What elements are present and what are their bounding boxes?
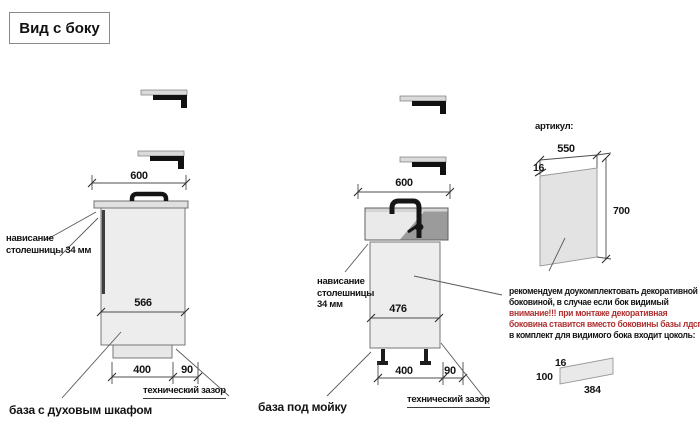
dim-566: 566 [134, 297, 151, 309]
dim-476: 476 [389, 303, 406, 315]
overhang-label-sink: нависание столешницы 34 мм [317, 276, 374, 311]
dim-400-oven: 400 [133, 364, 150, 376]
drawing-canvas: Вид с боку 600 566 400 90 технический за… [0, 0, 700, 428]
dim-90-sink: 90 [444, 365, 456, 377]
wall-bracket-icon [138, 151, 184, 169]
wall-bracket-icon [141, 90, 187, 108]
dim-16-panel: 16 [533, 162, 544, 174]
dim-line-700 [597, 153, 611, 263]
wall-bracket-icon [400, 157, 446, 175]
worktop [94, 201, 188, 208]
warning-line: боковина ставится вместо боковины базы л… [509, 319, 700, 330]
plinth-strip [560, 358, 613, 384]
technical-drawing [0, 0, 700, 428]
dim-400-sink: 400 [395, 365, 412, 377]
plinth [113, 345, 172, 358]
dim-600-oven: 600 [130, 170, 147, 182]
oven-door-gap [102, 210, 105, 294]
oven-handle [132, 194, 166, 201]
decor-panel-drawing [535, 151, 613, 384]
dim-16-plinth: 16 [555, 357, 566, 369]
panel-note-block: рекомендуем доукомплектовать декоративно… [509, 286, 700, 341]
warning-line: внимание!!! при монтаже декоративная [509, 308, 700, 319]
overhang-label-oven: нависание столешницы 34 мм [6, 233, 91, 256]
note-line: рекомендуем доукомплектовать декоративно… [509, 286, 700, 297]
worktop-edge [366, 209, 448, 213]
page-title: Вид с боку [19, 20, 100, 37]
decor-panel [540, 168, 597, 266]
leader-sink-label [327, 352, 371, 396]
dim-600-sink: 600 [395, 177, 412, 189]
note-line: в комплект для видимого бока входит цоко… [509, 330, 700, 341]
cabinet-body [370, 242, 440, 348]
tech-gap-label-oven: технический зазор [143, 385, 226, 399]
cabinet-body [101, 208, 185, 345]
dim-384-plinth: 384 [584, 384, 601, 396]
note-line: боковиной, в случае если бок видимый [509, 297, 700, 308]
adjustable-leg [420, 349, 431, 365]
oven-base-label: база с духовым шкафом [9, 403, 152, 417]
adjustable-leg [377, 349, 388, 365]
tech-gap-label-sink: технический зазор [407, 394, 490, 408]
wall-bracket-icon [400, 96, 446, 114]
sink-base-label: база под мойку [258, 400, 347, 414]
dim-90-oven: 90 [181, 364, 193, 376]
leader-overhang [345, 244, 368, 272]
view-title-box: Вид с боку [9, 12, 110, 44]
article-label: артикул: [535, 121, 573, 133]
dim-100-plinth: 100 [536, 371, 553, 383]
dim-700: 700 [613, 205, 630, 217]
dim-550: 550 [557, 143, 574, 155]
